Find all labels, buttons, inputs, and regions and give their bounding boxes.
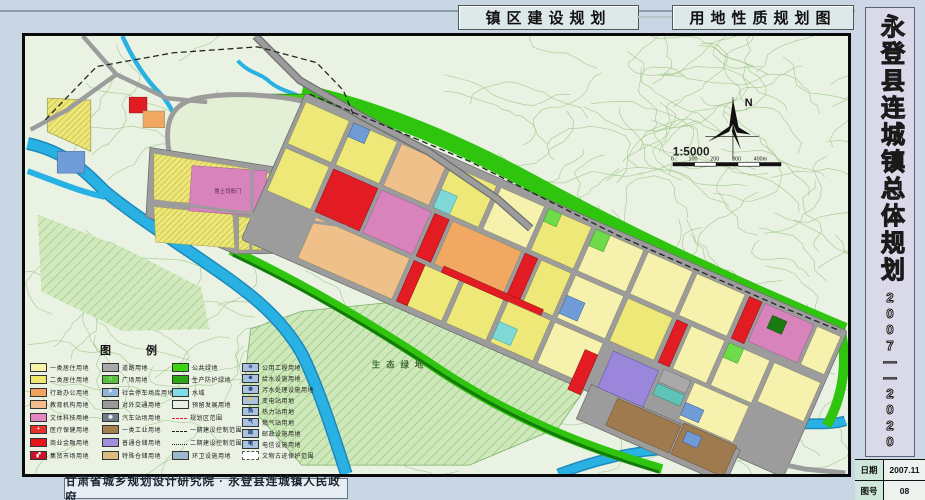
legend-item-label: 邮政设施用地 (262, 429, 301, 438)
legend-item-label: 热力站用地 (262, 407, 295, 416)
legend-item: 一期建设控制范围 (172, 426, 242, 434)
legend-item: ◍ 污水处理设施用地 (242, 385, 338, 393)
scale-tick: 100 (689, 156, 698, 162)
scale-tick: 200 (710, 156, 719, 162)
legend-item: 邮 邮政设施用地 (242, 430, 338, 438)
legend-item: 生产防护绿地 (172, 376, 242, 384)
legend-swatch: P (102, 388, 119, 397)
legend-item-label: 公共绿地 (192, 363, 218, 372)
legend-item: 环卫设施用地 (172, 451, 242, 459)
legend-column-2: 道路用地 ∷ 广场用地 P 社会停车场库用地 对外交通用地 ◉ 汽车站场用地 一… (102, 363, 172, 464)
legend-item: 二期建设控制范围 (172, 439, 242, 447)
header-connector (637, 16, 673, 18)
legend-column-1: 一类居住用地 二类居住用地 行政办公用地 教育机构用地 文体科技用地 + 医疗保… (30, 363, 102, 464)
legend-item-label: 水域 (192, 388, 205, 397)
legend-item: 行政办公用地 (30, 388, 102, 396)
legend-item-label: 公用工程用地 (262, 363, 301, 372)
legend-swatch (30, 413, 47, 422)
legend-item-label: 特殊仓储用地 (122, 451, 161, 460)
legend-item: ⊕ 给水设施用地 (242, 374, 338, 382)
date-label: 日期 (855, 460, 884, 480)
legend-swatch: ▞ (30, 451, 47, 460)
legend-item-label: 规划区范围 (190, 413, 223, 422)
legend-title: 图 例 (100, 342, 344, 358)
legend-swatch (172, 418, 187, 419)
legend-swatch (172, 363, 189, 372)
legend-item: 二类居住用地 (30, 376, 102, 384)
legend-item-label: 集贸市场用地 (50, 451, 89, 460)
scale-tick: 0 (671, 156, 674, 162)
legend-item-label: 一类工业用地 (122, 425, 161, 434)
header-left: 镇区建设规划 (458, 5, 639, 30)
legend-swatch: ∷ (102, 375, 119, 384)
table-row: 日期 2007.11 (855, 460, 925, 481)
sheet-no-value: 08 (884, 481, 925, 500)
legend-item-label: 教育机构用地 (50, 400, 89, 409)
legend-item-label: 一类居住用地 (50, 363, 89, 372)
sheet-no-label: 图号 (855, 481, 884, 500)
title-sidebar: 永登县连城镇总体规划 2007——2020 日期 2007.11 图号 08 (855, 0, 925, 500)
legend-swatch: ◉ (102, 413, 119, 422)
credit-bar: 甘肃省城乡规划设计研究院 · 永登县连城镇人民政府 (64, 478, 348, 499)
planning-sheet: 镇区建设规划 用地性质规划图 (0, 0, 925, 500)
legend-item: 规划区范围 (172, 413, 242, 421)
legend-item: 对外交通用地 (102, 401, 172, 409)
eco-green-label: 生态绿地 (372, 359, 429, 369)
legend-item-label: 二类居住用地 (50, 375, 89, 384)
legend-swatch (102, 438, 119, 447)
legend-item: 一类居住用地 (30, 363, 102, 371)
legend-swatch: ⊙ (242, 363, 259, 372)
legend-item-label: 变电站用地 (262, 396, 295, 405)
legend-swatch: 电 (242, 440, 259, 449)
legend-swatch: 气 (242, 418, 259, 427)
sheet-title-panel: 永登县连城镇总体规划 2007——2020 (865, 7, 915, 457)
legend-swatch (172, 375, 189, 384)
legend-item-label: 文物古迹保护范围 (262, 451, 314, 460)
scale-tick: 400m (754, 156, 768, 162)
legend-item-label: 广场用地 (122, 375, 148, 384)
legend-item: 热 热力站用地 (242, 407, 338, 415)
legend-item: ◉ 汽车站场用地 (102, 413, 172, 421)
legend-item: 预留发展用地 (172, 401, 242, 409)
legend-item-label: 环卫设施用地 (192, 451, 231, 460)
legend-item: ⚡ 变电站用地 (242, 396, 338, 404)
legend-item-label: 给水设施用地 (262, 374, 301, 383)
legend-swatch (30, 400, 47, 409)
scale-tick: 300 (732, 156, 741, 162)
legend-swatch (30, 388, 47, 397)
legend-item: 文体科技用地 (30, 413, 102, 421)
legend-swatch: ◍ (242, 385, 259, 394)
legend-item-label: 医疗保健用地 (50, 425, 89, 434)
legend-item: 道路用地 (102, 363, 172, 371)
legend-swatch: 热 (242, 407, 259, 416)
legend-item: 一类工业用地 (102, 426, 172, 434)
legend-item-label: 燃气站用地 (262, 418, 295, 427)
legend-item: + 医疗保健用地 (30, 426, 102, 434)
header-right: 用地性质规划图 (672, 5, 854, 30)
legend-item: 文物古迹保护范围 (242, 452, 338, 460)
legend-item: ⊙ 公用工程用地 (242, 363, 338, 371)
legend-item-label: 预留发展用地 (192, 400, 231, 409)
legend-item-label: 普通仓储用地 (122, 438, 161, 447)
sheet-years: 2007——2020 (883, 290, 898, 450)
legend-item: 公共绿地 (172, 363, 242, 371)
legend-item-label: 道路用地 (122, 363, 148, 372)
legend-item-label: 电信设施用地 (262, 440, 301, 449)
legend-item: 商业金融用地 (30, 439, 102, 447)
legend-item: 特殊仓储用地 (102, 451, 172, 459)
legend-item: 气 燃气站用地 (242, 418, 338, 426)
legend-swatch: ⚡ (242, 396, 259, 405)
table-row: 图号 08 (855, 481, 925, 500)
legend-swatch (30, 363, 47, 372)
legend-item: ∷ 广场用地 (102, 376, 172, 384)
legend-column-3: 公共绿地 生产防护绿地 水域 预留发展用地 规划区范围 一期建设控制范围 (172, 363, 242, 464)
legend-swatch (102, 400, 119, 409)
legend-item: 教育机构用地 (30, 401, 102, 409)
date-value: 2007.11 (884, 460, 925, 480)
legend-item-label: 行政办公用地 (50, 388, 89, 397)
legend-column-4: ⊙ 公用工程用地 ⊕ 给水设施用地 ◍ 污水处理设施用地 ⚡ 变电站用地 热 热… (242, 363, 338, 464)
legend-item-label: 二期建设控制范围 (190, 438, 242, 447)
legend-swatch (172, 388, 189, 397)
title-block-table: 日期 2007.11 图号 08 (855, 459, 925, 500)
legend-item: 水域 (172, 388, 242, 396)
legend-swatch (102, 425, 119, 434)
legend-swatch: ⊕ (242, 374, 259, 383)
legend-item-label: 对外交通用地 (122, 400, 161, 409)
legend-swatch (102, 451, 119, 460)
legend-swatch: 邮 (242, 429, 259, 438)
legend-swatch: + (30, 425, 47, 434)
legend-item-label: 汽车站场用地 (122, 413, 161, 422)
legend-item: ▞ 集贸市场用地 (30, 451, 102, 459)
legend-swatch (30, 438, 47, 447)
legend-swatch (172, 400, 189, 409)
legend-item-label: 商业金融用地 (50, 438, 89, 447)
heritage-label: 鲁土司衙门 (214, 187, 241, 195)
legend: 图 例 一类居住用地 二类居住用地 行政办公用地 教育机构用地 (30, 342, 344, 464)
legend-item-label: 污水处理设施用地 (262, 385, 314, 394)
legend-item: 电 电信设施用地 (242, 441, 338, 449)
legend-item-label: 一期建设控制范围 (190, 425, 242, 434)
legend-swatch (242, 451, 259, 460)
legend-item: P 社会停车场库用地 (102, 388, 172, 396)
legend-swatch (30, 375, 47, 384)
legend-swatch (172, 431, 187, 432)
legend-item-label: 文体科技用地 (50, 413, 89, 422)
legend-swatch (172, 451, 189, 460)
legend-swatch (172, 444, 187, 445)
legend-item-label: 生产防护绿地 (192, 375, 231, 384)
sheet-title: 永登县连城镇总体规划 (873, 14, 908, 284)
north-label: N (745, 97, 753, 109)
legend-item-label: 社会停车场库用地 (122, 388, 174, 397)
legend-item: 普通仓储用地 (102, 439, 172, 447)
legend-swatch (102, 363, 119, 372)
